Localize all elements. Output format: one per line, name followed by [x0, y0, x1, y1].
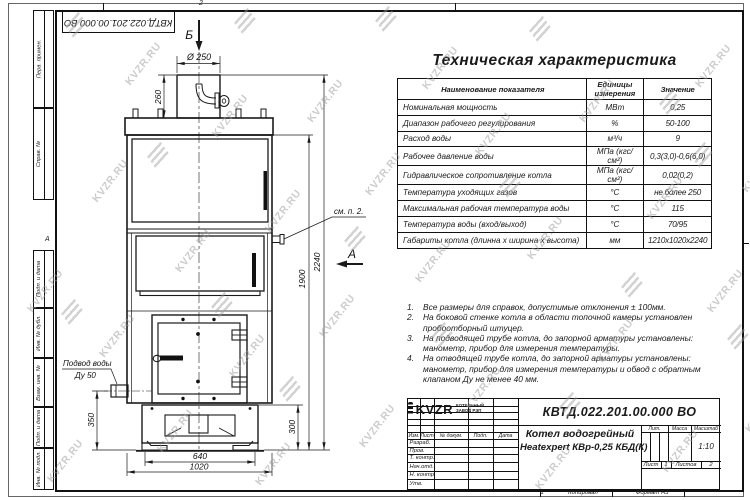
see-note-label: см. п. 2.: [334, 207, 363, 216]
dim-total-width: 1020: [190, 462, 209, 472]
dim-base-height: 300: [287, 420, 297, 434]
dim-flue-height: 260: [153, 90, 163, 105]
dim-base-width: 640: [193, 451, 207, 461]
middle-door: [136, 236, 264, 296]
drawing-sheet: { "watermark": {"text": "KVZR.RU"}, "col…: [0, 0, 750, 500]
dim-flue-diameter: Ø 250: [186, 52, 211, 62]
view-label-a: А: [347, 247, 356, 261]
dim-inlet-height: 350: [86, 413, 96, 427]
flue-section: [177, 75, 229, 118]
sampling-fitting: [272, 217, 366, 244]
upper-door: [132, 139, 268, 222]
water-inlet-label-2: Ду 50: [74, 371, 96, 380]
dim-total-height: 2240: [312, 252, 322, 272]
water-inlet-label-1: Подвод воды: [63, 359, 112, 368]
furnace-door: [152, 315, 247, 403]
boiler-front-view: Б А см. п. 2. Ø 250 260 2240 1900 350 30…: [0, 0, 750, 500]
view-arrow-b: [196, 20, 203, 51]
view-label-b: Б: [185, 28, 193, 42]
base-pedestal: [136, 405, 264, 451]
view-arrow-a: [336, 261, 363, 268]
boiler-body: [127, 135, 272, 403]
dim-body-height: 1900: [297, 269, 307, 288]
